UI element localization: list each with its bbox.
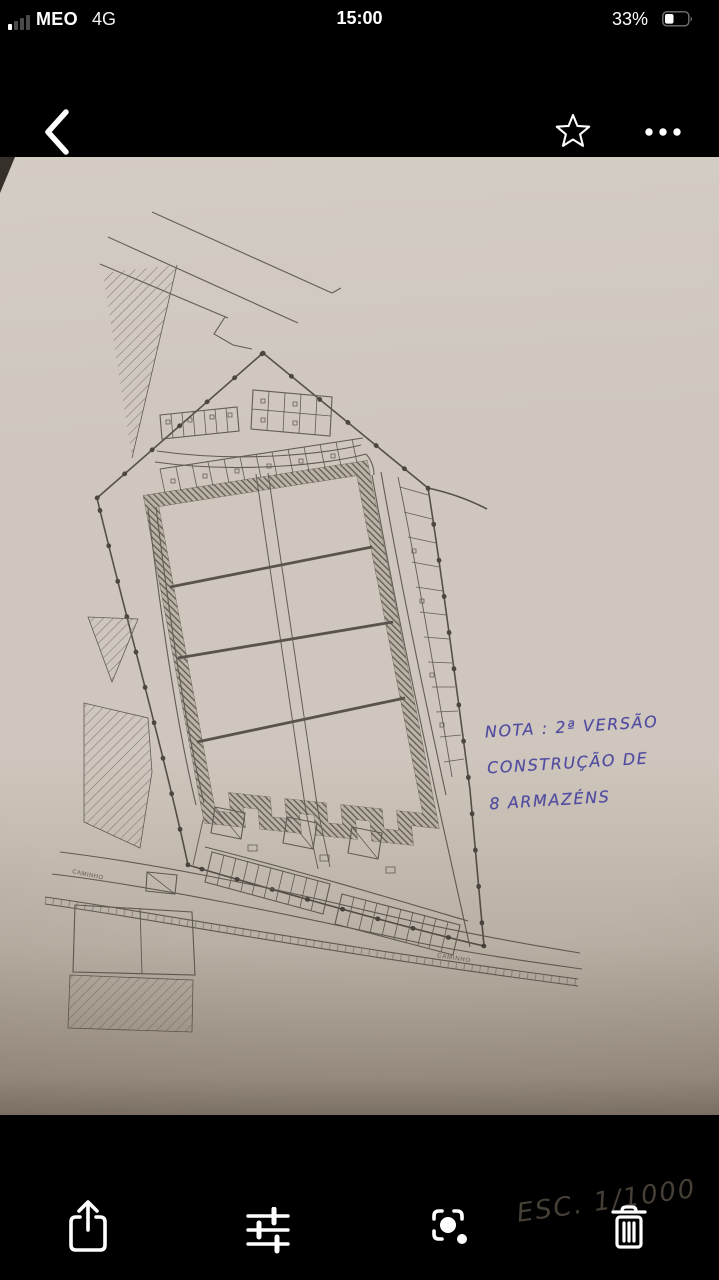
delete-button[interactable] (608, 1201, 650, 1253)
photo-view[interactable]: CAMINHO CAMINHO NOTA : 2ª VERSÃO CONSTRU… (0, 157, 719, 1115)
site-plan-drawing: CAMINHO CAMINHO (0, 157, 719, 1115)
site-boundary (97, 353, 487, 946)
share-icon (71, 1202, 105, 1250)
boundary-markers (97, 353, 484, 946)
road-label-left: CAMINHO (72, 869, 104, 881)
photo-corner-shadow (0, 157, 15, 193)
south-roads (45, 852, 582, 986)
adjust-button[interactable] (246, 1207, 290, 1255)
parking-north (155, 390, 374, 475)
visual-lookup-button[interactable] (426, 1203, 474, 1251)
iphone-screen: MEO 4G 15:00 33% (0, 0, 719, 1280)
favorite-button[interactable] (553, 112, 593, 152)
adjust-icon (248, 1209, 288, 1251)
handwritten-note: NOTA : 2ª VERSÃO CONSTRUÇÃO DE 8 ARMAZÉN… (484, 702, 700, 823)
parking-east-strip (372, 472, 470, 947)
trash-icon (613, 1207, 645, 1247)
warehouse-building (151, 468, 431, 869)
back-button[interactable] (38, 108, 78, 156)
plan-linework: CAMINHO CAMINHO (45, 212, 582, 1032)
nav-bar (0, 40, 719, 157)
plots-southwest (73, 905, 195, 975)
ellipsis-icon (645, 128, 680, 135)
visual-lookup-icon (434, 1211, 467, 1244)
bottom-toolbar (0, 1115, 719, 1280)
chevron-left-icon (48, 112, 66, 152)
more-button[interactable] (641, 124, 687, 140)
status-bar: MEO 4G 15:00 33% (0, 0, 719, 40)
share-button[interactable] (64, 1197, 112, 1255)
parking-south (205, 847, 468, 955)
battery-percent-label: 33% (612, 9, 648, 30)
battery-icon (662, 11, 695, 29)
star-icon (557, 115, 589, 146)
road-label-right: CAMINHO (437, 953, 471, 964)
